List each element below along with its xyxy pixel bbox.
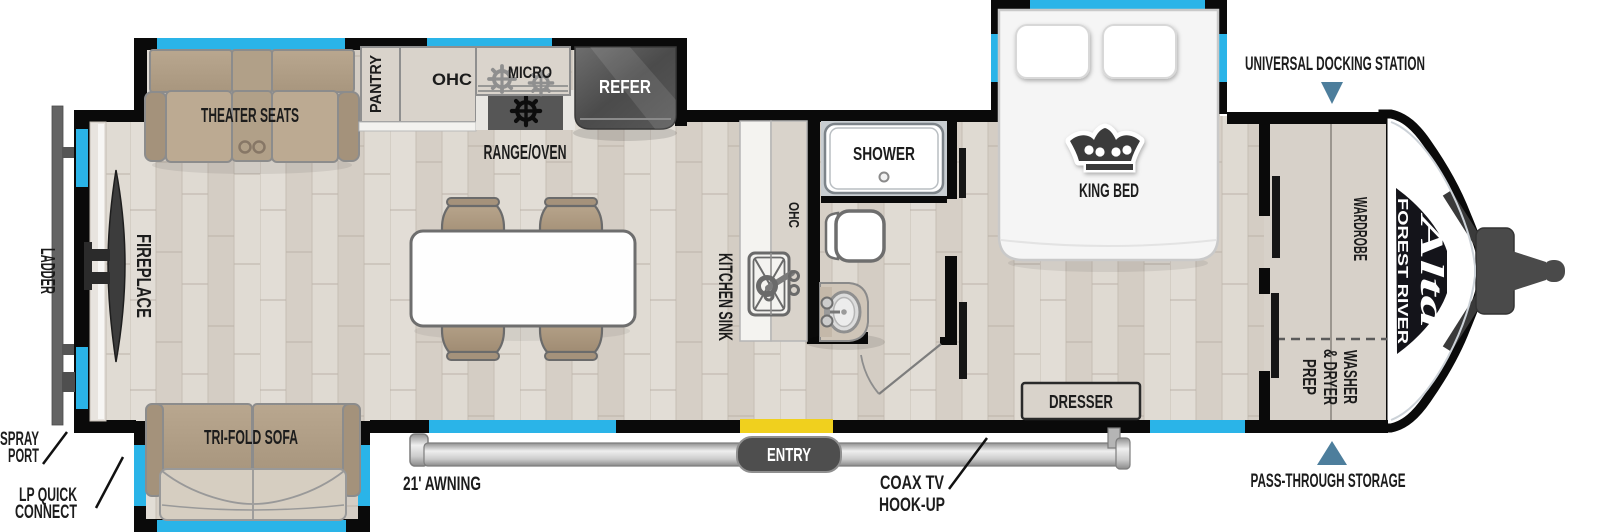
svg-text:HOOK-UP: HOOK-UP <box>879 495 945 516</box>
svg-text:UNIVERSAL DOCKING STATION: UNIVERSAL DOCKING STATION <box>1245 54 1425 75</box>
svg-text:MICRO: MICRO <box>508 63 552 82</box>
svg-text:REFER: REFER <box>599 77 651 97</box>
svg-text:PREP: PREP <box>1299 359 1319 395</box>
svg-text:FOREST RIVER: FOREST RIVER <box>1394 198 1411 344</box>
svg-text:COAX TV: COAX TV <box>880 473 944 494</box>
svg-text:SHOWER: SHOWER <box>853 144 915 164</box>
svg-text:Alta: Alta <box>1413 212 1449 328</box>
svg-text:ENTRY: ENTRY <box>767 445 811 465</box>
svg-text:TRI-FOLD SOFA: TRI-FOLD SOFA <box>204 427 298 449</box>
svg-text:KING BED: KING BED <box>1079 181 1139 202</box>
svg-text:RANGE/OVEN: RANGE/OVEN <box>484 142 567 164</box>
svg-text:OHC: OHC <box>432 70 472 89</box>
svg-text:KITCHEN SINK: KITCHEN SINK <box>714 253 735 341</box>
svg-text:DRESSER: DRESSER <box>1049 392 1113 412</box>
svg-text:WARDROBE: WARDROBE <box>1350 197 1370 261</box>
svg-text:PANTRY: PANTRY <box>368 55 385 113</box>
svg-text:FIREPLACE: FIREPLACE <box>132 234 154 318</box>
svg-text:LADDER: LADDER <box>36 248 58 294</box>
svg-text:OHC: OHC <box>785 202 802 228</box>
svg-text:& DRYER: & DRYER <box>1320 349 1340 405</box>
svg-text:PORT: PORT <box>8 446 39 467</box>
svg-text:21' AWNING: 21' AWNING <box>403 474 481 495</box>
svg-text:CONNECT: CONNECT <box>15 502 77 523</box>
svg-text:PASS-THROUGH STORAGE: PASS-THROUGH STORAGE <box>1251 471 1406 492</box>
svg-text:THEATER SEATS: THEATER SEATS <box>201 105 299 127</box>
svg-text:WASHER: WASHER <box>1340 350 1360 404</box>
